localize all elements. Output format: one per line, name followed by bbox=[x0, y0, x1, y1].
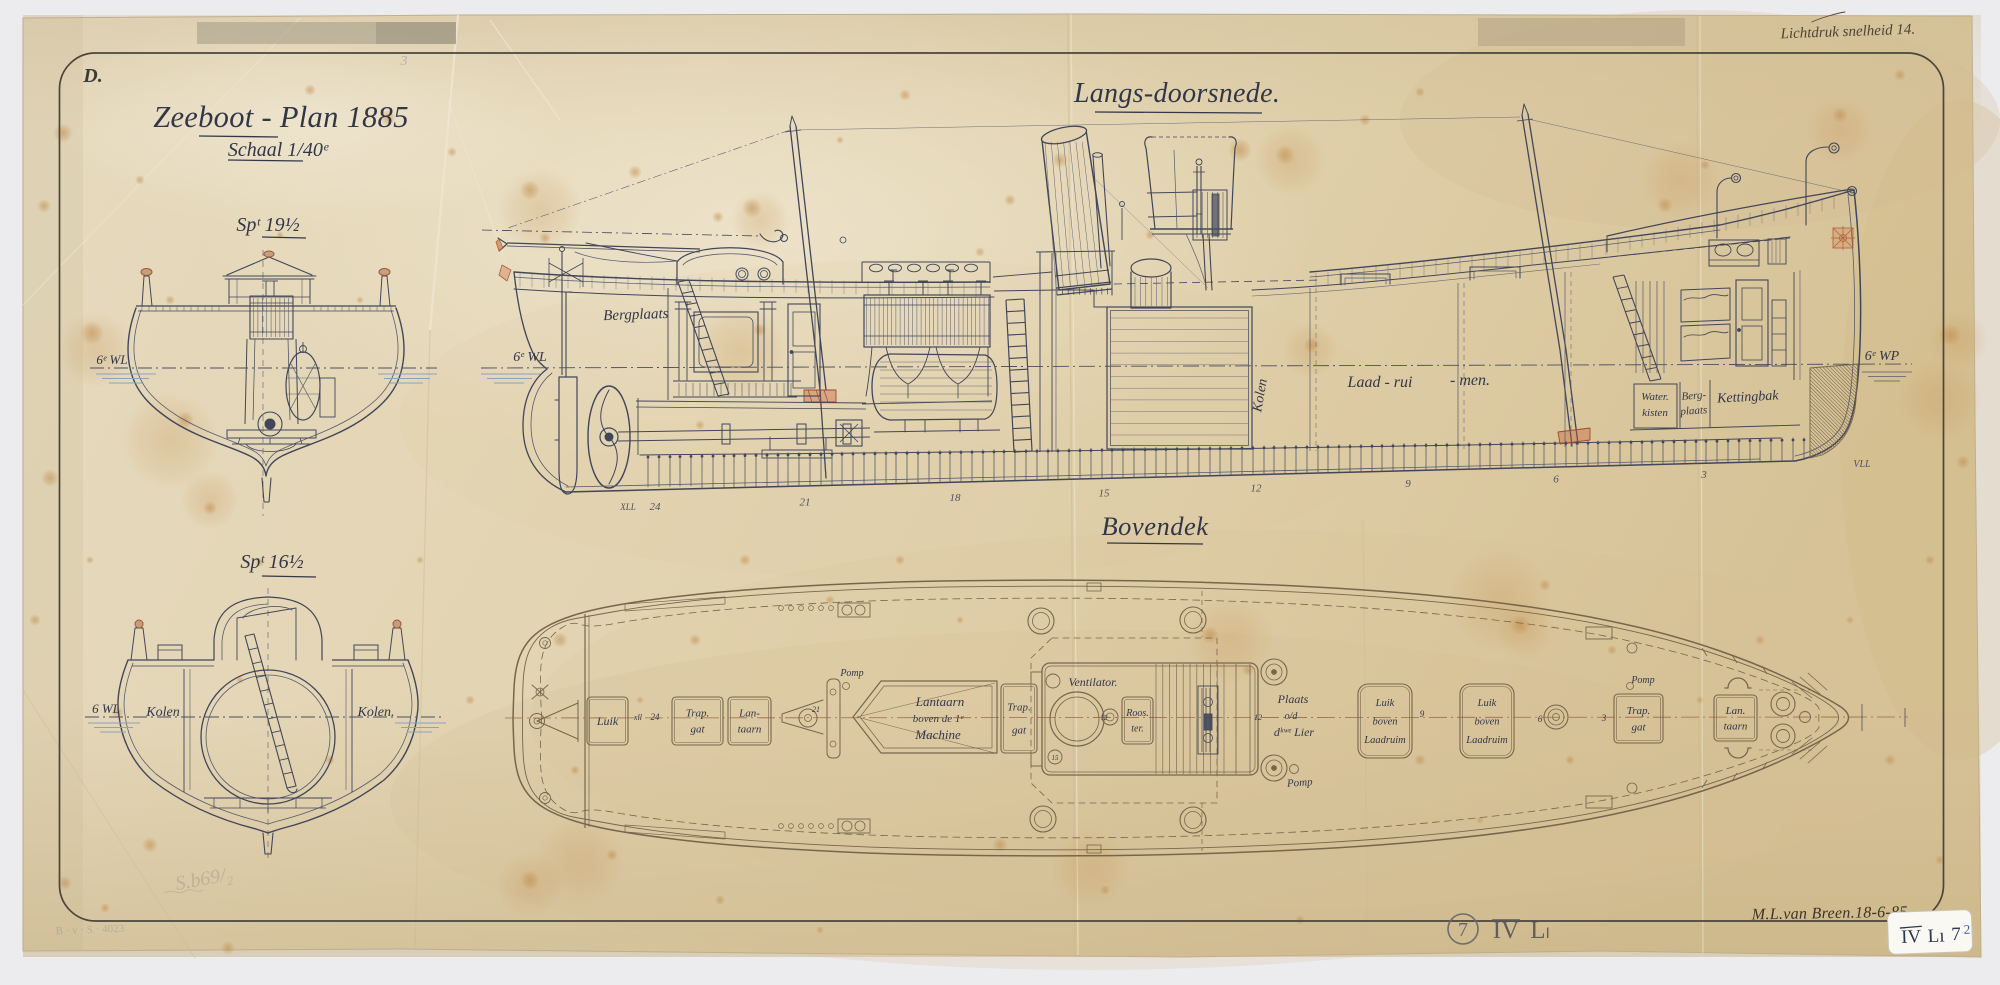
svg-text:24: 24 bbox=[651, 712, 661, 722]
svg-text:Zeeboot - Plan 1885: Zeeboot - Plan 1885 bbox=[153, 100, 409, 134]
svg-text:3: 3 bbox=[1601, 713, 1607, 723]
svg-text:3: 3 bbox=[1700, 469, 1707, 481]
svg-text:Trap.: Trap. bbox=[686, 708, 710, 720]
svg-text:Machine: Machine bbox=[914, 727, 961, 742]
svg-text:Kolen.: Kolen. bbox=[357, 705, 395, 720]
svg-text:Laadruim: Laadruim bbox=[1465, 735, 1508, 746]
svg-text:12: 12 bbox=[1251, 483, 1263, 495]
svg-text:7: 7 bbox=[1951, 924, 1961, 945]
svg-text:Bergplaats: Bergplaats bbox=[603, 306, 669, 324]
svg-text:Pomp: Pomp bbox=[1286, 776, 1314, 790]
svg-text:Roos.: Roos. bbox=[1125, 708, 1149, 719]
svg-text:6 WL: 6 WL bbox=[92, 701, 120, 716]
svg-text:ter.: ter. bbox=[1131, 724, 1144, 735]
svg-text:Luik: Luik bbox=[1375, 698, 1395, 709]
svg-text:B · v · S · 4023: B · v · S · 4023 bbox=[55, 923, 124, 937]
svg-text:6: 6 bbox=[1538, 714, 1543, 724]
svg-text:taarn: taarn bbox=[1724, 720, 1748, 732]
svg-text:15: 15 bbox=[1052, 754, 1060, 762]
svg-text:Laad - rui: Laad - rui bbox=[1347, 374, 1413, 391]
svg-text:gat: gat bbox=[1631, 721, 1646, 733]
svg-text:Schaal 1/40ᵉ: Schaal 1/40ᵉ bbox=[228, 139, 329, 161]
svg-text:12: 12 bbox=[1101, 714, 1109, 722]
svg-text:dᵏʷᵉ Lier: dᵏʷᵉ Lier bbox=[1274, 725, 1315, 739]
svg-text:Lan-: Lan- bbox=[738, 708, 760, 720]
svg-text:9: 9 bbox=[1405, 478, 1411, 490]
svg-text:6: 6 bbox=[1553, 474, 1559, 486]
svg-text:Pomp: Pomp bbox=[839, 668, 863, 679]
svg-text:Kolen: Kolen bbox=[145, 705, 179, 720]
svg-text:IV: IV bbox=[1901, 926, 1922, 948]
svg-text:9: 9 bbox=[1420, 709, 1425, 719]
svg-text:12: 12 bbox=[1254, 713, 1262, 722]
svg-text:Water.: Water. bbox=[1641, 391, 1668, 403]
svg-text:6ᵉ WP: 6ᵉ WP bbox=[1865, 349, 1900, 364]
svg-text:Lantaarn: Lantaarn bbox=[915, 694, 964, 709]
svg-text:Langs-doorsnede.: Langs-doorsnede. bbox=[1073, 78, 1280, 109]
svg-text:- men.: - men. bbox=[1450, 372, 1490, 389]
svg-text:6ᵉ WL: 6ᵉ WL bbox=[513, 350, 547, 365]
svg-text:Ventilator.: Ventilator. bbox=[1068, 675, 1117, 689]
svg-text:Pomp: Pomp bbox=[1630, 675, 1654, 686]
svg-text:gat: gat bbox=[690, 724, 705, 736]
svg-text:Spᵗ 19½: Spᵗ 19½ bbox=[236, 214, 299, 236]
svg-text:7: 7 bbox=[1458, 919, 1468, 941]
svg-text:xll: xll bbox=[633, 713, 643, 722]
svg-text:21: 21 bbox=[812, 705, 820, 714]
svg-text:Trap.: Trap. bbox=[1627, 705, 1651, 717]
svg-text:21: 21 bbox=[800, 496, 811, 508]
svg-text:18: 18 bbox=[950, 492, 962, 504]
svg-text:24: 24 bbox=[650, 501, 662, 513]
svg-text:taarn: taarn bbox=[738, 724, 762, 736]
svg-text:IV: IV bbox=[1493, 917, 1519, 944]
svg-text:Luik: Luik bbox=[1477, 698, 1497, 709]
svg-text:boven: boven bbox=[1372, 717, 1397, 728]
svg-text:Spᵗ 16½: Spᵗ 16½ bbox=[240, 551, 303, 573]
svg-text:Berg-: Berg- bbox=[1681, 389, 1707, 403]
svg-text:plaats: plaats bbox=[1679, 404, 1708, 418]
svg-text:Trap.: Trap. bbox=[1007, 702, 1031, 714]
svg-text:kisten: kisten bbox=[1642, 407, 1668, 419]
svg-text:Luik: Luik bbox=[596, 714, 619, 728]
svg-text:boven de 1ᵉ: boven de 1ᵉ bbox=[913, 713, 965, 725]
svg-text:VLL: VLL bbox=[1853, 459, 1871, 470]
svg-text:2: 2 bbox=[1963, 922, 1970, 937]
svg-text:o/d: o/d bbox=[1285, 711, 1299, 722]
svg-text:Lₗ: Lₗ bbox=[1530, 917, 1549, 944]
svg-text:Laadruim: Laadruim bbox=[1363, 735, 1406, 746]
svg-text:gat: gat bbox=[1012, 725, 1027, 737]
svg-text:boven: boven bbox=[1474, 717, 1499, 728]
svg-text:15: 15 bbox=[1099, 487, 1111, 499]
svg-text:3: 3 bbox=[400, 54, 408, 69]
svg-text:6ᵉ WL: 6ᵉ WL bbox=[96, 352, 127, 367]
svg-text:Plaats: Plaats bbox=[1277, 692, 1309, 706]
svg-text:Lan.: Lan. bbox=[1725, 705, 1746, 717]
svg-text:Bovendek: Bovendek bbox=[1102, 511, 1210, 541]
svg-text:Lı: Lı bbox=[1927, 925, 1945, 947]
svg-text:XLL: XLL bbox=[619, 502, 636, 512]
svg-text:D.: D. bbox=[82, 65, 102, 87]
